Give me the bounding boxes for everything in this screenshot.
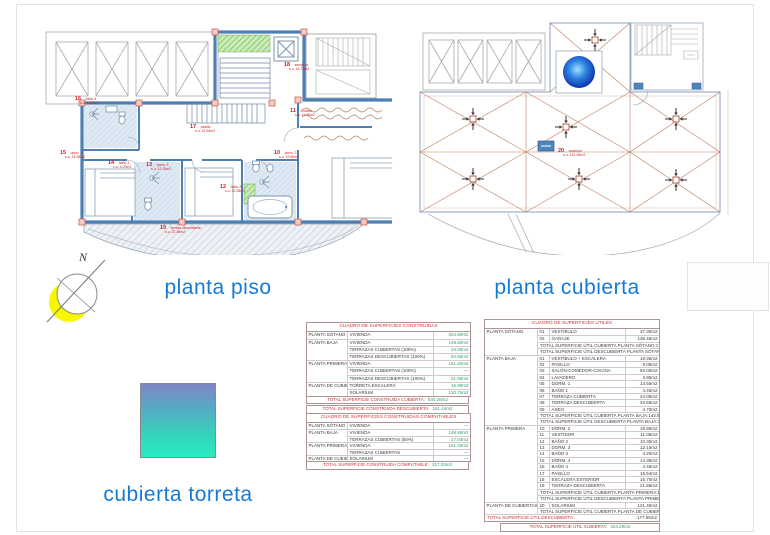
computables-rows: PLANTA SÓTANO VIVIENDA — PLANTA BAJA VIV… — [307, 423, 470, 461]
garage-skylight-left — [46, 32, 218, 104]
utiles-table-title: CUADRO DE SUPERFICIES ÚTILES — [485, 320, 659, 329]
construidas-totals: TOTAL SUPERFICIE CONSTRUIDA CUBIERTA: 54… — [306, 396, 469, 415]
drawing-sheet: { "titles": { "plan_left": "planta piso"… — [0, 0, 770, 535]
utiles-grand-total: TOTAL SUPERFICIE ÚTIL CUBIERTA: 424.29m2 — [500, 523, 660, 532]
compass-north-label: N — [78, 250, 88, 264]
lower-terrace-outline — [428, 213, 720, 255]
computables-table: CUADRO DE SUPERFICIES CONSTRUIDAS COMPUT… — [306, 413, 471, 462]
utiles-table: CUADRO DE SUPERFICIES ÚTILES PLANTA SÓTA… — [484, 319, 660, 522]
closet-rods — [302, 108, 382, 140]
total-strip: TOTAL SUPERFICIE CONSTRUIDA COMPUTABLE: … — [306, 461, 469, 470]
caption-cubierta-torreta: cubierta torreta — [88, 483, 268, 507]
floor-plan-planta-piso: 16 baño 4 s.u. 4.45m2 15 dorm. 4 s.u. 14… — [32, 10, 392, 255]
bed-room15 — [85, 169, 135, 216]
construidas-rows: PLANTA SÓTANO VIVIENDA 204.80m2 PLANTA B… — [307, 332, 470, 396]
stairs-interior — [187, 58, 270, 123]
caption-planta-cubierta: planta cubierta — [482, 276, 652, 300]
roof-plan-drawing — [398, 15, 733, 255]
roof-plan-planta-cubierta: 20 solarium s.u. 121.45m2 — [398, 15, 733, 255]
computables-totals: TOTAL SUPERFICIE CONSTRUIDA COMPUTABLE: … — [306, 461, 469, 471]
roof-hatch — [538, 141, 554, 151]
title-block-fragment — [687, 262, 769, 311]
elevator — [274, 37, 298, 61]
bath-14-tiles — [134, 162, 180, 220]
skylight-dome — [556, 51, 602, 93]
planter-green — [218, 35, 270, 52]
bathtub — [248, 196, 292, 218]
computables-table-title: CUADRO DE SUPERFICIES CONSTRUIDAS COMPUT… — [307, 414, 470, 423]
bed-room10 — [332, 158, 392, 218]
construidas-table: CUADRO DE SUPERFICIES CONSTRUIDAS PLANTA… — [306, 322, 471, 397]
garage-skylight-right — [423, 33, 545, 90]
exterior-stair-18 — [306, 34, 376, 98]
legend-gradient-swatch — [140, 383, 216, 458]
bed-room13 — [185, 168, 233, 216]
floor-plan-left-drawing — [32, 10, 392, 255]
total-strip: TOTAL SUPERFICIE CONSTRUIDA CUBIERTA: 54… — [306, 396, 469, 405]
skylight-dome-icon — [563, 56, 595, 88]
terrace-descubierta — [84, 224, 364, 255]
north-arrow-icon: N — [35, 250, 125, 330]
construidas-table-title: CUADRO DE SUPERFICIES CONSTRUIDAS — [307, 323, 470, 332]
caption-planta-piso: planta piso — [148, 276, 288, 300]
utiles-rows: PLANTA SÓTANO 01 VESTÍBULO 37.30m2 37.30… — [485, 329, 659, 521]
